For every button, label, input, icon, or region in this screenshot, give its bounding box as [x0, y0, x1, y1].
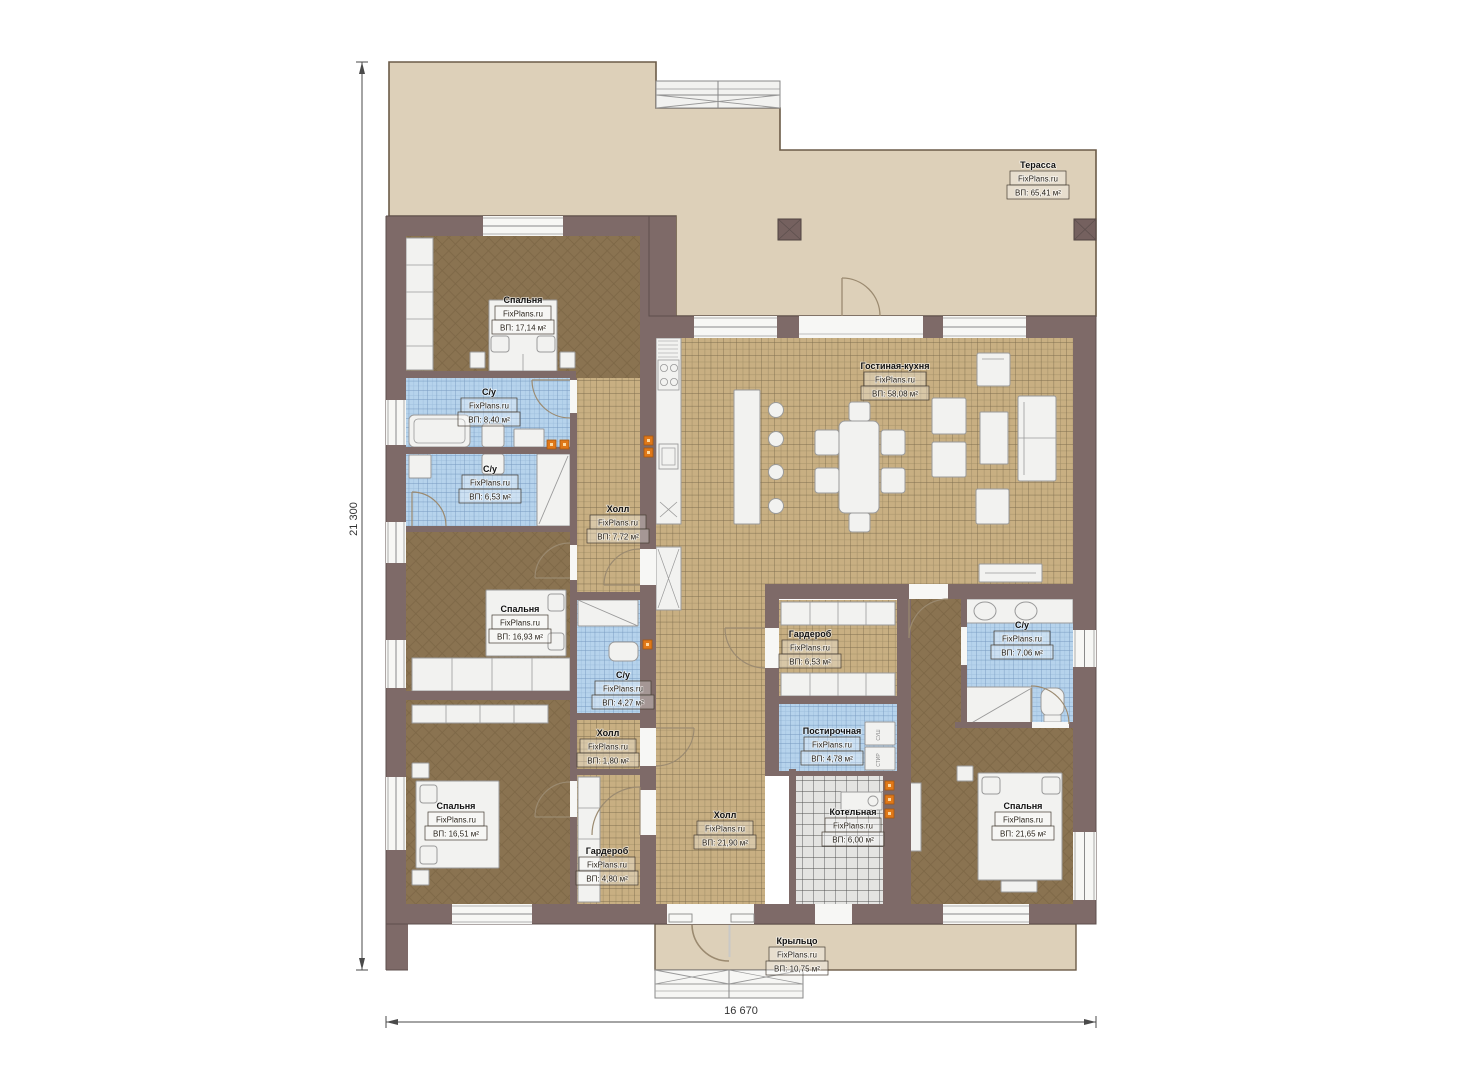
svg-text:Холл: Холл [714, 810, 737, 820]
svg-text:Крыльцо: Крыльцо [777, 936, 818, 946]
svg-text:FixPlans.ru: FixPlans.ru [705, 825, 745, 834]
svg-text:FixPlans.ru: FixPlans.ru [469, 402, 509, 411]
svg-text:Гардероб: Гардероб [789, 629, 832, 639]
svg-text:ВП: 4,80 м²: ВП: 4,80 м² [586, 875, 628, 884]
svg-text:ВП: 4,78 м²: ВП: 4,78 м² [811, 755, 853, 764]
svg-text:FixPlans.ru: FixPlans.ru [812, 741, 852, 750]
svg-text:FixPlans.ru: FixPlans.ru [436, 816, 476, 825]
svg-text:FixPlans.ru: FixPlans.ru [875, 376, 915, 385]
svg-text:ВП: 16,51 м²: ВП: 16,51 м² [433, 830, 479, 839]
svg-text:Котельная: Котельная [829, 807, 876, 817]
svg-text:FixPlans.ru: FixPlans.ru [790, 644, 830, 653]
svg-text:Холл: Холл [597, 728, 620, 738]
svg-text:ВП: 10,75 м²: ВП: 10,75 м² [774, 965, 820, 974]
svg-text:ВП: 6,53 м²: ВП: 6,53 м² [789, 658, 831, 667]
svg-text:СУШ: СУШ [876, 729, 882, 741]
svg-text:Спальня: Спальня [501, 604, 540, 614]
svg-text:FixPlans.ru: FixPlans.ru [833, 822, 873, 831]
svg-text:Постирочная: Постирочная [803, 726, 861, 736]
svg-text:ВП: 58,08 м²: ВП: 58,08 м² [872, 390, 918, 399]
svg-text:ВП: 6,00 м²: ВП: 6,00 м² [832, 836, 874, 845]
svg-text:С/у: С/у [483, 464, 497, 474]
svg-text:ВП: 1,80 м²: ВП: 1,80 м² [587, 757, 629, 766]
svg-text:FixPlans.ru: FixPlans.ru [1003, 816, 1043, 825]
svg-text:ВП: 21,65 м²: ВП: 21,65 м² [1000, 830, 1046, 839]
svg-text:ВП: 7,72 м²: ВП: 7,72 м² [597, 533, 639, 542]
svg-text:FixPlans.ru: FixPlans.ru [603, 685, 643, 694]
svg-text:Гардероб: Гардероб [586, 846, 629, 856]
svg-text:FixPlans.ru: FixPlans.ru [503, 310, 543, 319]
svg-text:ВП: 6,53 м²: ВП: 6,53 м² [469, 493, 511, 502]
svg-text:ВП: 8,40 м²: ВП: 8,40 м² [468, 416, 510, 425]
svg-text:FixPlans.ru: FixPlans.ru [777, 951, 817, 960]
svg-text:С/у: С/у [616, 670, 630, 680]
svg-text:FixPlans.ru: FixPlans.ru [587, 861, 627, 870]
svg-text:Терасса: Терасса [1020, 160, 1057, 170]
svg-text:ВП: 16,93 м²: ВП: 16,93 м² [497, 633, 543, 642]
svg-text:FixPlans.ru: FixPlans.ru [470, 479, 510, 488]
svg-text:16 670: 16 670 [724, 1005, 758, 1017]
svg-text:Спальня: Спальня [1004, 801, 1043, 811]
svg-text:ВП: 4,27 м²: ВП: 4,27 м² [602, 699, 644, 708]
svg-text:СТИР: СТИР [876, 753, 882, 767]
svg-text:Холл: Холл [607, 504, 630, 514]
svg-text:FixPlans.ru: FixPlans.ru [588, 743, 628, 752]
svg-text:FixPlans.ru: FixPlans.ru [1018, 175, 1058, 184]
svg-text:Гостиная-кухня: Гостиная-кухня [861, 361, 930, 371]
svg-text:Спальня: Спальня [437, 801, 476, 811]
svg-text:С/у: С/у [1015, 620, 1029, 630]
svg-text:FixPlans.ru: FixPlans.ru [1002, 635, 1042, 644]
svg-text:FixPlans.ru: FixPlans.ru [500, 619, 540, 628]
svg-text:ВП: 17,14 м²: ВП: 17,14 м² [500, 324, 546, 333]
svg-text:ВП: 7,06 м²: ВП: 7,06 м² [1001, 649, 1043, 658]
svg-text:ВП: 65,41 м²: ВП: 65,41 м² [1015, 189, 1061, 198]
svg-text:ВП: 21,90 м²: ВП: 21,90 м² [702, 839, 748, 848]
svg-text:FixPlans.ru: FixPlans.ru [598, 519, 638, 528]
svg-text:21 300: 21 300 [348, 502, 360, 536]
svg-text:С/у: С/у [482, 387, 496, 397]
svg-text:Спальня: Спальня [504, 295, 543, 305]
